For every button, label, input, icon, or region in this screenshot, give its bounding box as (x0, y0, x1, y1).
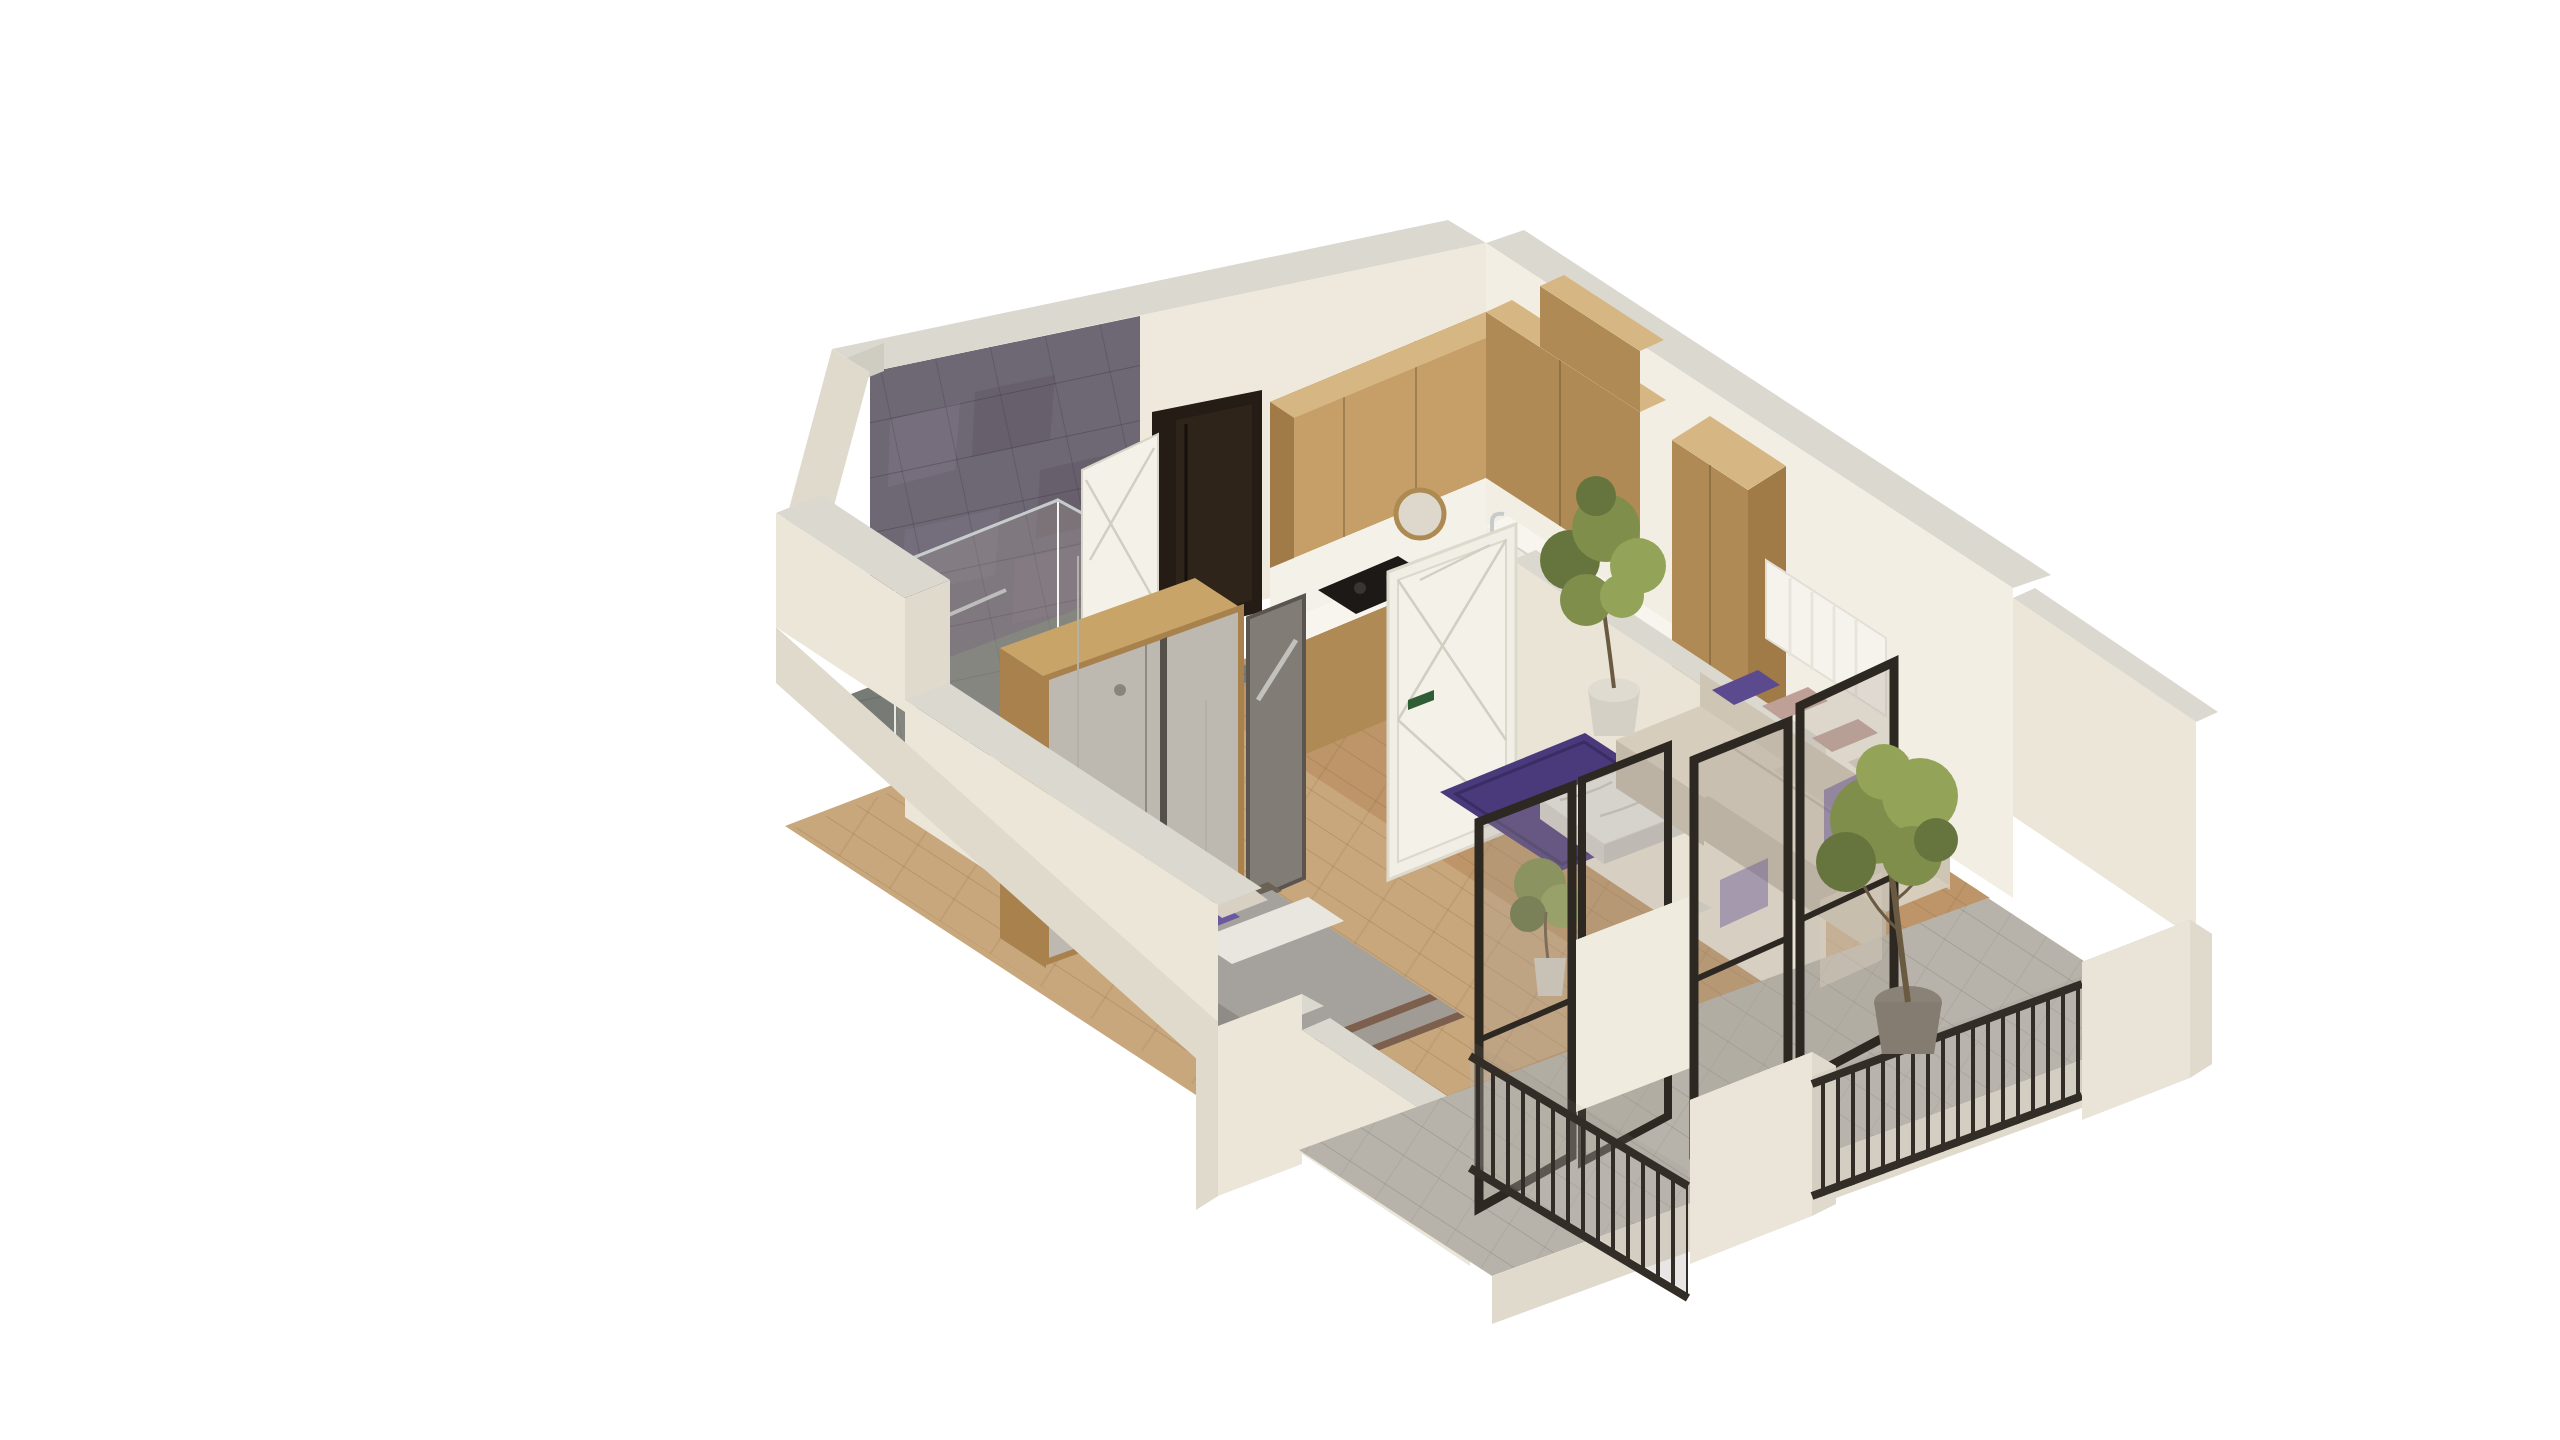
apartment-render (0, 0, 2560, 1440)
cooktop-burner (1354, 582, 1366, 594)
balcony-ne-wall (2013, 588, 2218, 940)
leaning-mirror (1248, 596, 1304, 902)
floorplan-stage (0, 0, 2560, 1440)
wardrobe-handle (1160, 637, 1167, 853)
round-gold-mirror (1396, 490, 1444, 538)
balcony-pier-right (2082, 920, 2212, 1120)
wardrobe-knob (1114, 684, 1126, 696)
